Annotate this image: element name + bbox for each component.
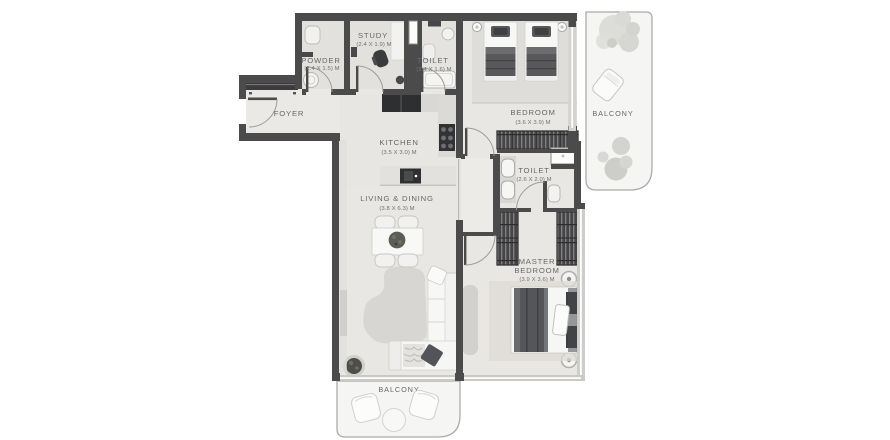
svg-text:STUDY: STUDY	[358, 31, 388, 40]
svg-text:(2.4 X 1.5) M: (2.4 X 1.5) M	[304, 66, 339, 72]
svg-text:POWDER: POWDER	[301, 56, 340, 65]
svg-text:(2.4 X 1.9) M: (2.4 X 1.9) M	[356, 42, 391, 48]
svg-text:FOYER: FOYER	[274, 109, 304, 118]
svg-text:MASTER: MASTER	[519, 257, 556, 266]
svg-text:BALCONY: BALCONY	[378, 385, 419, 394]
svg-text:(2.4 X 1.6) M: (2.4 X 1.6) M	[416, 67, 451, 73]
svg-text:(3.8 X 6.3) M: (3.8 X 6.3) M	[379, 206, 414, 212]
svg-text:(3.6 X 3.9) M: (3.6 X 3.9) M	[515, 120, 550, 126]
svg-text:LIVING & DINING: LIVING & DINING	[360, 194, 434, 203]
svg-text:BEDROOM: BEDROOM	[514, 266, 559, 275]
svg-text:BALCONY: BALCONY	[592, 109, 633, 118]
svg-text:BEDROOM: BEDROOM	[510, 108, 555, 117]
svg-text:TOILET: TOILET	[518, 166, 550, 175]
svg-text:(3.9 X 3.6) M: (3.9 X 3.6) M	[519, 277, 554, 283]
svg-text:(3.5 X 3.0) M: (3.5 X 3.0) M	[381, 150, 416, 156]
svg-text:TOILET: TOILET	[417, 56, 449, 65]
svg-text:KITCHEN: KITCHEN	[379, 138, 418, 147]
svg-text:(2.6 X 2.0) M: (2.6 X 2.0) M	[516, 177, 551, 183]
